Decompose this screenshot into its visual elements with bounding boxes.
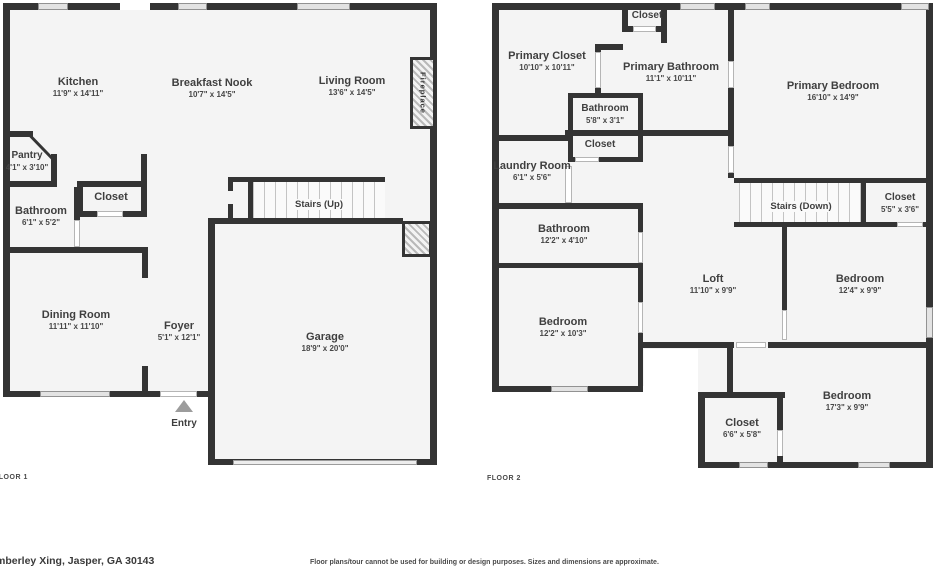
nm: Closet <box>723 417 761 429</box>
wall <box>141 154 147 217</box>
wall <box>568 93 643 98</box>
stairs-down-label: Stairs (Down) <box>767 196 834 214</box>
bedroom-door <box>782 310 787 340</box>
wall <box>727 348 733 393</box>
dm: 5'5" x 3'6" <box>881 205 919 214</box>
dm: 6'1" x 5'2" <box>15 218 67 227</box>
room-label-closet-top: Closet <box>632 10 663 22</box>
garage-door <box>233 460 417 465</box>
nm: Laundry Room <box>493 160 571 172</box>
wall <box>698 392 785 398</box>
wall <box>208 218 215 465</box>
dm: 11'1" x 10'11" <box>623 74 719 83</box>
room-label-loft: Loft 11'10" x 9'9" <box>690 273 737 295</box>
nm: Bedroom <box>539 316 587 328</box>
wall <box>248 177 253 223</box>
nm: Entry <box>171 418 197 430</box>
room-label-bedroom-bottom: Bedroom 17'3" x 9'9" <box>823 390 871 412</box>
window <box>297 3 350 10</box>
nm: Closet <box>632 10 663 22</box>
nm: Bathroom <box>581 103 628 115</box>
room-label-breakfast-nook: Breakfast Nook 10'7" x 14'5" <box>172 77 253 99</box>
dm: 4'1" x 3'10" <box>6 163 49 172</box>
room-label-bedroom-right: Bedroom 12'4" x 9'9" <box>836 273 884 295</box>
wall <box>782 227 787 310</box>
dm: 5'8" x 3'1" <box>581 116 628 125</box>
closet-door <box>777 430 783 458</box>
nm: Loft <box>690 273 737 285</box>
wall <box>734 178 933 183</box>
dm: 10'7" x 14'5" <box>172 90 253 99</box>
window <box>901 3 929 10</box>
wall <box>568 93 573 135</box>
dm: 11'10" x 9'9" <box>690 286 737 295</box>
nm: Primary Closet <box>508 50 586 62</box>
nm: Bedroom <box>836 273 884 285</box>
dm: 13'6" x 14'5" <box>319 88 386 97</box>
nm: Primary Bedroom <box>787 80 879 92</box>
nm: Closet <box>585 139 616 151</box>
closet-door <box>575 157 599 162</box>
wall <box>3 3 437 10</box>
room-label-living-room: Living Room 13'6" x 14'5" <box>319 75 386 97</box>
stairs-lbl: Stairs (Up) <box>292 199 346 210</box>
wall <box>492 135 568 141</box>
disclaimer-text: Floor plans/tour cannot be used for buil… <box>310 559 659 566</box>
room-label-closet: Closet <box>94 191 128 203</box>
nm: Garage <box>302 331 349 343</box>
dm: 17'3" x 9'9" <box>823 403 871 412</box>
nm: Bedroom <box>823 390 871 402</box>
wall <box>142 247 148 278</box>
wall <box>492 203 643 209</box>
wall <box>777 456 783 468</box>
room-label-pantry: Pantry 4'1" x 3'10" <box>6 150 49 172</box>
dm: 6'6" x 5'8" <box>723 430 761 439</box>
wall <box>643 342 734 348</box>
window <box>858 462 890 468</box>
dm: 12'2" x 4'10" <box>538 236 590 245</box>
closet-door <box>97 211 123 217</box>
nm: Foyer <box>158 320 201 332</box>
room-label-closet-stairs: Closet 5'5" x 3'6" <box>881 192 919 214</box>
stairs-lbl: Stairs (Down) <box>767 201 834 212</box>
wall <box>492 3 499 392</box>
window <box>38 3 68 10</box>
room-label-primary-closet: Primary Closet 10'10" x 10'11" <box>508 50 586 72</box>
wall <box>3 3 10 397</box>
nm: Living Room <box>319 75 386 87</box>
wall <box>926 3 933 468</box>
wall <box>777 392 783 432</box>
nm: Kitchen <box>53 76 104 88</box>
room-label-kitchen: Kitchen 11'9" x 14'11" <box>53 76 104 98</box>
wall <box>698 392 705 468</box>
stairs-up-label: Stairs (Up) <box>292 194 346 212</box>
wall <box>861 178 866 227</box>
dm: 16'10" x 14'9" <box>787 93 879 102</box>
wall <box>208 218 403 224</box>
room-label-garage: Garage 18'9" x 20'0" <box>302 331 349 353</box>
room-label-bathroom-hall: Bathroom 12'2" x 4'10" <box>538 223 590 245</box>
nm: Dining Room <box>42 309 110 321</box>
dm: 12'2" x 10'3" <box>539 329 587 338</box>
wall <box>698 462 933 468</box>
room-label-laundry-room: Laundry Room 6'1" x 5'6" <box>493 160 571 182</box>
chimney-chase <box>402 221 432 257</box>
patch <box>120 3 150 10</box>
patch <box>644 349 698 387</box>
entry-arrow-icon <box>175 400 193 412</box>
wall <box>638 93 643 135</box>
nm: Closet <box>881 192 919 204</box>
entry-label: Entry <box>171 418 197 430</box>
room-label-primary-bathroom: Primary Bathroom 11'1" x 10'11" <box>623 61 719 83</box>
window <box>40 391 110 397</box>
bedroom-door <box>736 342 766 348</box>
closet-door <box>897 222 923 227</box>
room-label-bedroom-left: Bedroom 12'2" x 10'3" <box>539 316 587 338</box>
primary-bedroom-door <box>728 61 734 88</box>
window <box>551 386 588 392</box>
bathroom-door <box>638 232 643 263</box>
dm: 18'9" x 20'0" <box>302 344 349 353</box>
window <box>739 462 768 468</box>
closet-door <box>633 26 656 32</box>
floor2-tag: FLOOR 2 <box>487 475 521 482</box>
room-label-primary-bedroom: Primary Bedroom 16'10" x 14'9" <box>787 80 879 102</box>
fireplace-label: Fireplace <box>419 72 428 114</box>
room-label-bathroom: Bathroom 6'1" x 5'2" <box>15 205 67 227</box>
property-address: mberley Xing, Jasper, GA 30143 <box>0 555 154 567</box>
window <box>680 3 715 10</box>
wall <box>77 181 147 187</box>
nm: Pantry <box>6 150 49 162</box>
dm: 6'1" x 5'6" <box>493 173 571 182</box>
floor1-tag: FLOOR 1 <box>0 474 28 481</box>
bedroom-door <box>638 302 643 333</box>
window <box>926 307 933 338</box>
dm: 10'10" x 10'11" <box>508 63 586 72</box>
wall <box>74 187 80 220</box>
room-label-dining-room: Dining Room 11'11" x 11'10" <box>42 309 110 331</box>
nm: Bathroom <box>538 223 590 235</box>
wall <box>768 342 933 348</box>
wall <box>228 177 233 191</box>
wall <box>3 181 57 187</box>
hall-door <box>728 146 734 173</box>
nm: Bathroom <box>15 205 67 217</box>
window <box>745 3 770 10</box>
window <box>178 3 207 10</box>
wall <box>565 130 734 136</box>
bathroom-door <box>74 220 80 247</box>
entry-door <box>160 391 197 397</box>
room-label-closet-mid: Closet <box>585 139 616 151</box>
dm: 11'11" x 11'10" <box>42 322 110 331</box>
wall <box>3 247 148 253</box>
wall <box>661 3 667 43</box>
dm: 11'9" x 14'11" <box>53 89 104 98</box>
nm: Primary Bathroom <box>623 61 719 73</box>
floor-plan-image: Kitchen 11'9" x 14'11" Breakfast Nook 10… <box>0 0 938 568</box>
room-label-closet-bottom: Closet 6'6" x 5'8" <box>723 417 761 439</box>
dm: 12'4" x 9'9" <box>836 286 884 295</box>
room-label-foyer: Foyer 5'1" x 12'1" <box>158 320 201 342</box>
nm: Breakfast Nook <box>172 77 253 89</box>
nm: Closet <box>94 191 128 203</box>
dm: 5'1" x 12'1" <box>158 333 201 342</box>
wall <box>492 263 643 268</box>
room-label-bathroom-small: Bathroom 5'8" x 3'1" <box>581 103 628 125</box>
primary-bathroom-door <box>595 52 601 88</box>
